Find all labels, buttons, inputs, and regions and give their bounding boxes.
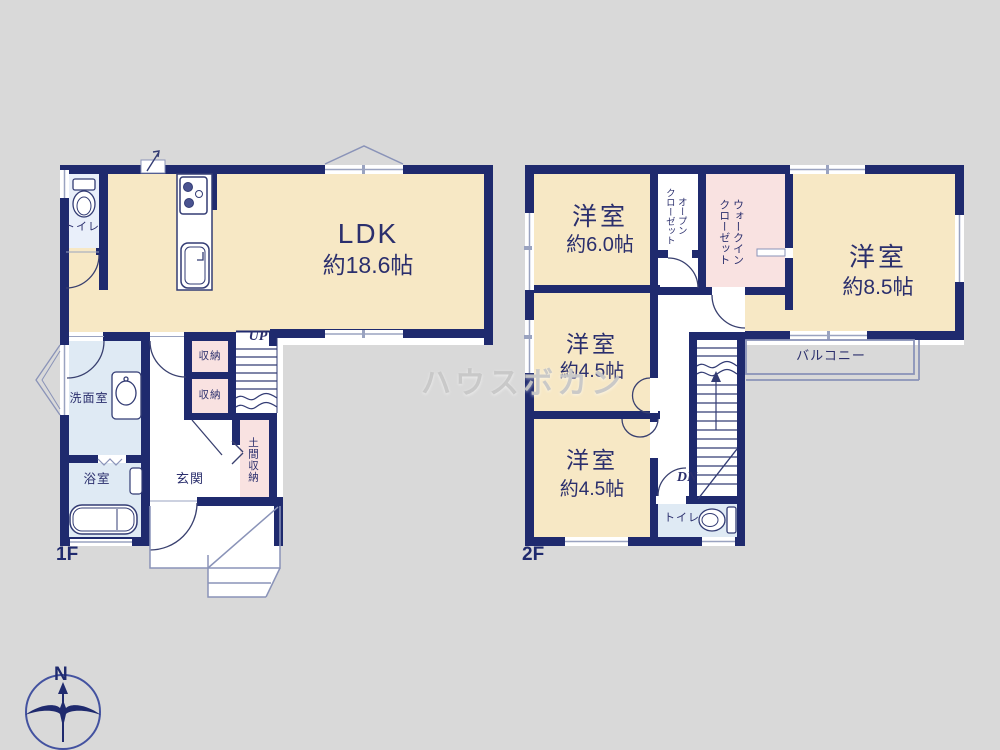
label-storage-lower: 収納: [188, 390, 232, 402]
label-ldk: LDK: [298, 219, 438, 250]
label-open-closet: オープン クローゼット: [663, 176, 687, 256]
bay-window-top: [325, 146, 403, 164]
label-doma-storage: 土間収納: [246, 424, 261, 496]
wic-door-leaf: [757, 249, 785, 256]
watermark: ハウスボカン: [421, 358, 625, 402]
toilet-icon-2f: [699, 507, 736, 533]
label-storage-upper: 収納: [188, 351, 232, 363]
compass: [25, 675, 101, 749]
bathtub-icon: [70, 505, 137, 534]
bath-fixture: [130, 468, 142, 494]
kitchen-counter-icon: [177, 174, 212, 290]
label-stairs-dn: DN: [670, 470, 704, 485]
label-bedroom45b-size: 約4.5帖: [522, 480, 662, 501]
label-toilet-1f: トイレ: [58, 221, 106, 233]
label-entrance: 玄関: [164, 472, 216, 486]
label-ldk-size: 約18.6帖: [288, 253, 448, 278]
label-floor2: 2F: [522, 544, 544, 566]
label-bedroom60: 洋室: [540, 204, 660, 232]
compass-bird-icon: [25, 700, 101, 727]
toilet-icon-1f: [73, 179, 95, 217]
label-walk-in-closet: ウォークイン クローゼット: [716, 182, 744, 282]
stove-icon: [180, 177, 207, 214]
label-bedroom60-size: 約6.0帖: [530, 234, 670, 256]
label-bedroom45b: 洋室: [532, 448, 652, 473]
label-floor1: 1F: [56, 544, 78, 566]
label-bedroom85: 洋室: [808, 243, 948, 272]
label-bedroom45a: 洋室: [532, 332, 652, 357]
label-bedroom85-size: 約8.5帖: [798, 276, 958, 299]
label-washroom: 洗面室: [59, 392, 119, 405]
label-bathroom: 浴室: [71, 473, 123, 487]
label-balcony: バルコニー: [781, 349, 881, 363]
label-stairs-up: UP: [242, 329, 274, 344]
compass-north-label: N: [54, 664, 68, 686]
bay-window-left: [36, 345, 60, 415]
label-toilet-2f: トイレ: [660, 512, 704, 524]
floor-plan-page: トイレ LDK 約18.6帖 収納 収納 UP 洗面室 玄関 土間収納 浴室 1…: [0, 0, 1000, 750]
